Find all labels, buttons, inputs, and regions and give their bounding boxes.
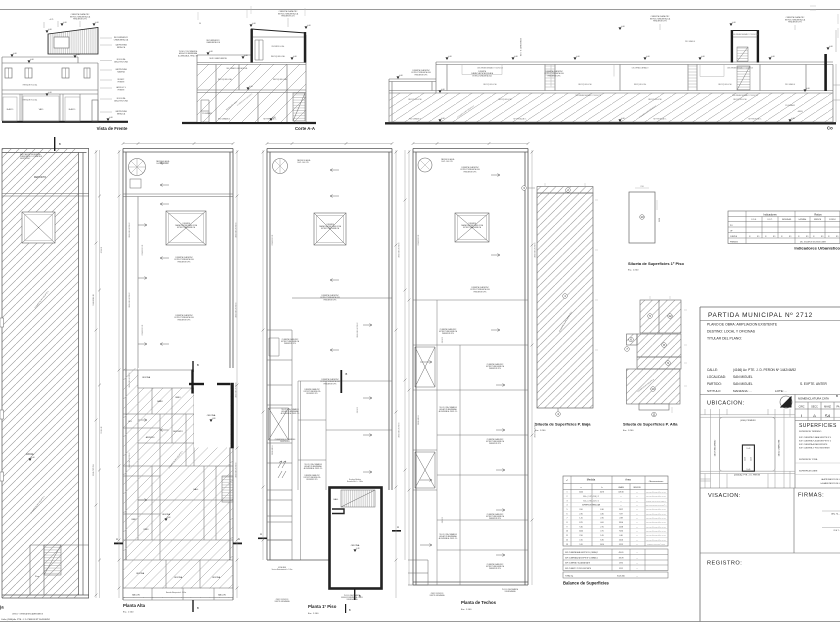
svg-text:10: 10 — [566, 531, 568, 533]
svg-text:2.35: 2.35 — [579, 513, 582, 515]
svg-text:38.08 4.80 LH 298 .06: 38.08 4.80 LH 298 .06 — [399, 242, 401, 257]
svg-text:9: 9 — [567, 526, 568, 528]
svg-text:OFICINA: OFICINA — [162, 513, 171, 516]
svg-text:5: 5 — [567, 509, 568, 511]
svg-text:LILO: LILO — [128, 421, 132, 423]
svg-text:4: 4 — [567, 505, 568, 507]
svg-text:8.25: 8.25 — [579, 522, 582, 524]
svg-text:Observaciones: Observaciones — [649, 480, 664, 483]
svg-text:10.10: 10.10 — [600, 544, 604, 546]
svg-text:CUMPLE: CUMPLE — [730, 236, 738, 238]
svg-text:SEMICUB: SEMICUB — [633, 487, 640, 489]
svg-text:ARCHIVO: ARCHIVO — [146, 436, 155, 439]
svg-text:Silueta de Superficies P. Baja: Silueta de Superficies P. Baja — [535, 422, 591, 427]
svg-text:38.08 4.80 LH 298 .06: 38.08 4.80 LH 298 .06 — [357, 322, 359, 337]
svg-text:7: 7 — [567, 518, 568, 520]
svg-text:Indicadores Urbanistico: Indicadores Urbanistico — [794, 246, 840, 251]
svg-text:8.20 4.30: 8.20 4.30 — [101, 247, 103, 253]
svg-text:+0.00: +0.00 — [576, 56, 580, 58]
svg-text:54.50: 54.50 — [745, 457, 747, 461]
svg-text:(4166) PRIMERO: (4166) PRIMERO — [740, 420, 756, 422]
svg-text:FONDO: FONDO — [829, 219, 836, 221]
svg-text:10.40: 10.40 — [579, 492, 583, 494]
svg-text:+0.00: +0.00 — [621, 118, 625, 120]
svg-text:+5.18: +5.18 — [356, 548, 360, 550]
svg-text:CUH T...: CUH T... — [833, 530, 840, 532]
svg-text:10.40: 10.40 — [579, 531, 583, 533]
svg-text:13: 13 — [566, 544, 568, 546]
svg-text:12: 12 — [668, 314, 672, 318]
svg-text:Esc. 1:200: Esc. 1:200 — [535, 430, 546, 432]
svg-text:OFICINA: OFICINA — [136, 572, 145, 575]
svg-text:SAN MIGUEL: SAN MIGUEL — [733, 382, 753, 386]
svg-text:Esc. 1:100: Esc. 1:100 — [461, 609, 472, 611]
svg-text:NOMENCLATURA CATA: NOMENCLATURA CATA — [798, 397, 829, 401]
svg-text:+0.00: +0.00 — [514, 56, 518, 58]
svg-text:SUP. CUBIERTA P. BAJA S/EXPTE: SUP. CUBIERTA P. BAJA S/EXPTE Nº 4 — [799, 436, 831, 439]
svg-text:+0.00: +0.00 — [293, 56, 297, 58]
svg-text:MANZANA: ...: MANZANA: ... — [733, 389, 752, 393]
svg-text:OFICINA: OFICINA — [207, 414, 216, 417]
svg-text:Silueta de Superficies P. Alta: Silueta de Superficies P. Alta — [623, 422, 678, 427]
svg-text:BAÑO: BAÑO — [157, 400, 163, 403]
svg-text:4.30: 4.30 — [600, 513, 603, 515]
svg-text:11: 11 — [652, 413, 655, 417]
svg-text:+0.00: +0.00 — [209, 51, 213, 53]
svg-text:DEL. S/CUMPLE S/N-TINGO LIBRE: DEL. S/CUMPLE S/N-TINGO LIBRE — [800, 241, 826, 243]
svg-text:A: A — [397, 525, 399, 529]
svg-text:33.00: 33.00 — [619, 522, 623, 524]
svg-text:+0.00: +0.00 — [732, 22, 736, 24]
svg-text:(4166) Av. PTE. J. D. PERON: (4166) Av. PTE. J. D. PERON — [734, 474, 761, 477]
svg-text:4.40: 4.40 — [619, 535, 622, 537]
svg-text:OFICINA: OFICINA — [351, 544, 360, 547]
svg-text:REVEST.FRENTE: REVEST.FRENTE — [117, 79, 125, 83]
svg-text:SUPERFICIE LIBRE: SUPERFICIE LIBRE — [799, 471, 818, 473]
svg-text:DESTINO: LOCAL Y OFICINAS: DESTINO: LOCAL Y OFICINAS — [707, 330, 756, 334]
svg-text:Esc. 1:100: Esc. 1:100 — [123, 612, 134, 614]
svg-text:SUP. CUBIERTA ALTA EXISTENTE: SUP. CUBIERTA ALTA EXISTENTE — [799, 443, 828, 446]
svg-text:+0.00: +0.00 — [806, 88, 810, 90]
svg-text:4.75: 4.75 — [600, 531, 603, 533]
svg-text:LATERAL: LATERAL — [799, 218, 807, 221]
svg-text:+0.00: +0.00 — [791, 118, 795, 120]
svg-text:LOCAL: LOCAL — [26, 453, 35, 456]
svg-text:3.81 0.15: 3.81 0.15 — [442, 337, 444, 343]
svg-text:CIRC: CIRC — [799, 405, 805, 408]
svg-text:PLANO DE OBRA: AMPLIACION EXI: PLANO DE OBRA: AMPLIACION EXISTENTE — [707, 323, 778, 327]
svg-text:38.08 4.80 LH 298 .06: 38.08 4.80 LH 298 .06 — [399, 422, 401, 437]
svg-text:DENSIDAD: DENSIDAD — [782, 218, 792, 221]
svg-text:+0.00: +0.00 — [441, 118, 445, 120]
svg-text:54.50: 54.50 — [751, 457, 753, 461]
svg-text:REGISTRO:: REGISTRO: — [707, 561, 742, 567]
svg-text:4.00: 4.00 — [600, 522, 603, 524]
svg-text:PREMIOS: PREMIOS — [730, 242, 739, 244]
svg-text:ja: ja — [0, 605, 4, 610]
svg-text:nº: nº — [566, 479, 568, 482]
svg-text:Esc. 1:100: Esc. 1:100 — [308, 613, 319, 615]
svg-text:SECC: SECC — [811, 405, 818, 408]
svg-text:1.65: 1.65 — [600, 535, 603, 537]
svg-text:(4166) Av. PTE. J. D. PERON Nº: (4166) Av. PTE. J. D. PERON Nº 1442/46/5… — [733, 368, 796, 372]
svg-text:+0.00: +0.00 — [48, 29, 52, 31]
svg-text:+0.00: +0.00 — [109, 117, 113, 119]
svg-text:SUPERFICIE TOTAL: SUPERFICIE TOTAL — [799, 458, 819, 461]
svg-text:2.70: 2.70 — [600, 526, 603, 528]
svg-text:Vista de Frente: Vista de Frente — [97, 126, 128, 131]
svg-text:+0.00: +0.00 — [272, 117, 276, 119]
svg-text:+0.00: +0.00 — [252, 23, 256, 25]
svg-text:TITULAR DEL PLANO:: TITULAR DEL PLANO: — [707, 337, 742, 341]
svg-text:LOTE: ...: LOTE: ... — [775, 389, 787, 393]
svg-text:+0.00: +0.00 — [249, 86, 253, 88]
svg-text:54: 54 — [825, 414, 831, 419]
svg-text:S/TITULO: S/TITULO — [707, 389, 721, 393]
svg-text:BALCON: BALCON — [218, 594, 226, 597]
svg-text:B: B — [346, 372, 348, 376]
svg-text:DEPOSITO: DEPOSITO — [34, 176, 46, 179]
svg-text:UBICACION:: UBICACION: — [707, 401, 745, 407]
svg-text:1: 1 — [567, 492, 568, 494]
svg-text:9.87: 9.87 — [619, 513, 622, 515]
svg-text:Ratios: Ratios — [814, 212, 822, 216]
svg-text:2.35: 2.35 — [600, 518, 603, 520]
svg-text:3: 3 — [567, 500, 568, 502]
svg-text:13: 13 — [640, 215, 644, 219]
svg-text:10.40: 10.40 — [747, 469, 751, 471]
svg-text:6.30: 6.30 — [600, 509, 603, 511]
svg-text:Balance de Superficies: Balance de Superficies — [563, 581, 610, 586]
svg-text:DEPOSITO: DEPOSITO — [173, 431, 183, 433]
svg-text:29.90: 29.90 — [619, 563, 623, 565]
svg-text:+0.00: +0.00 — [76, 54, 80, 56]
svg-text:S. EXPTE. ANTER: S. EXPTE. ANTER — [800, 382, 827, 386]
svg-text:8.021.305: 8.021.305 — [617, 575, 625, 577]
svg-text:1.20: 1.20 — [579, 518, 582, 520]
svg-text:Calle (4166) Av. PTE. J. D. PE: Calle (4166) Av. PTE. J. D. PERON Nº 144… — [1, 618, 51, 621]
svg-text:6.30: 6.30 — [600, 539, 603, 541]
svg-text:+0.00: +0.00 — [701, 56, 705, 58]
svg-text:11: 11 — [566, 535, 568, 537]
svg-text:193.78: 193.78 — [619, 558, 624, 560]
svg-text:Medida: Medida — [587, 478, 596, 482]
svg-text:40.76: 40.76 — [600, 492, 604, 494]
svg-text:A: A — [116, 537, 118, 541]
svg-text:Indicadores: Indicadores — [763, 212, 777, 216]
svg-text:SUP. CUBIERTA 1º PISO EXISTENT: SUP. CUBIERTA 1º PISO EXISTENTE — [799, 447, 831, 450]
svg-text:Co: Co — [827, 126, 833, 131]
svg-text:SUPERFICIES: SUPERFICIES — [799, 423, 837, 429]
svg-text:BALCON: BALCON — [132, 594, 140, 597]
svg-text:Planta de Techos: Planta de Techos — [461, 600, 497, 605]
svg-text:LA APROBACION DE L: LA APROBACION DE L — [821, 478, 840, 481]
svg-text:Planta Alta: Planta Alta — [123, 603, 146, 608]
svg-text:B: B — [197, 606, 199, 610]
svg-text:19.00: 19.00 — [659, 218, 661, 222]
svg-text:+3.08: +3.08 — [167, 517, 171, 519]
svg-text:+ 6.25: + 6.25 — [49, 19, 54, 21]
svg-text:+0.00: +0.00 — [63, 22, 67, 24]
svg-text:+0.00: +0.00 — [399, 75, 403, 77]
svg-text:TE-DO LOSA CERAMICAAISLACION M: TE-DO LOSA CERAMICAAISLACION MEMBRANAALU… — [439, 533, 458, 540]
svg-text:2.88: 2.88 — [619, 518, 622, 520]
svg-text:OFICINA: OFICINA — [142, 376, 151, 379]
svg-text:25.38: 25.38 — [619, 526, 623, 528]
svg-text:LIBAFE: LIBAFE — [618, 486, 625, 489]
svg-text:38.08 4.80 LH: 38.08 4.80 LH — [418, 415, 420, 424]
svg-text:3.81 0.15: 3.81 0.15 — [442, 517, 444, 523]
svg-text:423.66: 423.66 — [618, 492, 623, 494]
svg-text:MANZ: MANZ — [824, 405, 831, 408]
svg-text:Esc. 1:200: Esc. 1:200 — [628, 270, 639, 272]
svg-text:Planta 1º Piso: Planta 1º Piso — [308, 604, 337, 609]
svg-text:38.08 4.80 LH 298 .06: 38.08 4.80 LH 298 .06 — [129, 222, 131, 237]
svg-text:A: A — [238, 537, 240, 541]
svg-text:3.90: 3.90 — [579, 509, 582, 511]
svg-text:16.04 0.30 4.30: 16.04 0.30 4.30 — [93, 294, 95, 305]
svg-text:3.81 0.15: 3.81 0.15 — [357, 407, 359, 413]
svg-text:38.08 4.80 LH 298 .06: 38.08 4.80 LH 298 .06 — [129, 292, 131, 307]
svg-text:(4167) BELGRANO: (4167) BELGRANO — [714, 439, 717, 456]
svg-text:12.64 0.30: 12.64 0.30 — [101, 426, 103, 433]
svg-text:+3.08: +3.08 — [212, 418, 216, 420]
svg-text:OFICINA: OFICINA — [212, 576, 221, 579]
svg-text:10.40: 10.40 — [747, 448, 751, 450]
svg-text:+0.00: +0.00 — [30, 59, 34, 61]
svg-text:7.20 + ( 2.90 + 2.47 ) / 2: 7.20 + ( 2.90 + 2.47 ) / 2 — [583, 500, 599, 502]
svg-text:+0.00: +0.00 — [13, 53, 17, 55]
svg-text:+0.00: +0.00 — [31, 457, 35, 459]
svg-text:Area: Area — [625, 478, 631, 482]
svg-text:5.20: 5.20 — [579, 544, 582, 546]
svg-text:F.O.S.: F.O.S. — [752, 219, 757, 221]
svg-text:B: B — [359, 594, 361, 598]
svg-text:39.06 CECI O.B: 39.06 CECI O.B — [93, 464, 95, 475]
svg-text:10: 10 — [651, 387, 655, 391]
svg-text:LOCALIDAD:: LOCALIDAD: — [707, 375, 726, 379]
svg-text:52.52: 52.52 — [619, 544, 623, 546]
svg-text:TECHO CON CERAMICAAISLACION ME: TECHO CON CERAMICAAISLACION MEMBRANAALUM… — [178, 50, 198, 57]
svg-text:38.08 4.80 LH 298 .06: 38.08 4.80 LH 298 .06 — [535, 242, 537, 257]
svg-text:70.30: 70.30 — [619, 531, 623, 533]
svg-text:CERCO Y VEREDA REGLAMENTARIOS: CERCO Y VEREDA REGLAMENTARIOS — [12, 613, 44, 616]
svg-text:2: 2 — [567, 496, 568, 498]
svg-text:VISACION:: VISACION: — [708, 493, 741, 499]
svg-text:LA HABILITACION DE L: LA HABILITACION DE L — [821, 482, 840, 485]
svg-text:OFICINA: OFICINA — [174, 576, 183, 579]
svg-text:2.90: 2.90 — [579, 535, 582, 537]
svg-text:38.08 4.80 LH: 38.08 4.80 LH — [272, 445, 274, 454]
svg-text:FRENTE: FRENTE — [814, 219, 822, 221]
svg-text:5.90 + ( 2.47 + 2.30 ) / 2: 5.90 + ( 2.47 + 2.30 ) / 2 — [583, 496, 599, 498]
svg-text:490.20: 490.20 — [619, 552, 624, 554]
svg-text:+0.00: +0.00 — [771, 56, 775, 58]
svg-text:B: B — [59, 142, 61, 146]
svg-text:TE-DO LOSA CERAMICAAISLACION M: TE-DO LOSA CERAMICAAISLACION MEMBRANAALU… — [304, 463, 323, 470]
svg-text:4.10: 4.10 — [579, 539, 582, 541]
svg-text:+0.00: +0.00 — [244, 55, 248, 57]
svg-text:12: 12 — [566, 539, 568, 541]
svg-text:SUPERFICIE TERRENO: SUPERFICIE TERRENO — [799, 431, 822, 433]
svg-text:ARQ. NL...: ARQ. NL... — [831, 513, 840, 516]
svg-text:SUP. CUBIERTA P. ALTA S/EXPTE: SUP. CUBIERTA P. ALTA S/EXPTE Nº 4 — [799, 440, 831, 443]
svg-text:52.52: 52.52 — [619, 568, 623, 570]
svg-text:+0.00: +0.00 — [829, 46, 833, 48]
svg-text:+0.00: +0.00 — [95, 22, 99, 24]
svg-text:+0.00: +0.00 — [448, 56, 452, 58]
svg-text:-6.80%: -6.80% — [797, 111, 803, 113]
svg-text:7.00: 7.00 — [640, 186, 643, 188]
svg-text:23.57: 23.57 — [619, 509, 623, 511]
svg-text:Silueta de Superficies 1º Piso: Silueta de Superficies 1º Piso — [628, 261, 684, 266]
svg-text:CALLE:: CALLE: — [707, 368, 718, 372]
svg-text:TE-DO LOSA CERAMICAAISLACION M: TE-DO LOSA CERAMICAAISLACION MEMBRANAALU… — [439, 406, 458, 413]
svg-text:24.04: 24.04 — [619, 539, 623, 541]
svg-text:HALL: HALL — [334, 498, 339, 501]
svg-text:8: 8 — [567, 522, 568, 524]
svg-text:A: A — [260, 532, 262, 536]
svg-text:PARTIDA MUNICIPAL Nº 2712: PARTIDA MUNICIPAL Nº 2712 — [708, 312, 813, 319]
svg-text:PASO: PASO — [144, 528, 149, 531]
svg-text:+0.00: +0.00 — [441, 89, 445, 91]
svg-text:+0.00: +0.00 — [621, 26, 625, 28]
svg-text:+0.00: +0.00 — [646, 56, 650, 58]
svg-text:+0.00: +0.00 — [307, 25, 311, 27]
svg-text:TE-DO LOSA CERAMICAAISLACION M: TE-DO LOSA CERAMICAAISLACION MEMBRANAALU… — [281, 408, 300, 415]
svg-text:TOTAL Sq.: TOTAL Sq. — [565, 574, 574, 577]
svg-text:6: 6 — [567, 513, 568, 515]
svg-text:FIRMAS:: FIRMAS: — [798, 493, 824, 499]
svg-text:I: I — [801, 414, 802, 419]
svg-text:F.O.T.: F.O.T. — [768, 219, 773, 221]
svg-text:Esc. 1:200: Esc. 1:200 — [623, 430, 634, 432]
svg-text:B: B — [197, 363, 199, 367]
svg-text:RECUBRIMIENTOCHAPA METALICA: RECUBRIMIENTOCHAPA METALICA — [114, 37, 129, 41]
svg-text:Corte A-A: Corte A-A — [295, 126, 315, 131]
svg-text:HALL: HALL — [193, 488, 199, 491]
svg-text:+0.00: +0.00 — [48, 92, 52, 94]
svg-text:9.40: 9.40 — [579, 526, 582, 528]
svg-text:PASO: PASO — [175, 396, 181, 399]
svg-text:(4165) CHARLONE: (4165) CHARLONE — [778, 439, 781, 456]
svg-text:SAN MIGUEL: SAN MIGUEL — [733, 375, 753, 379]
svg-text:PARTIDO:: PARTIDO: — [707, 382, 722, 386]
svg-text:PA: PA — [836, 405, 839, 408]
svg-text:PASO: PASO — [132, 518, 137, 521]
